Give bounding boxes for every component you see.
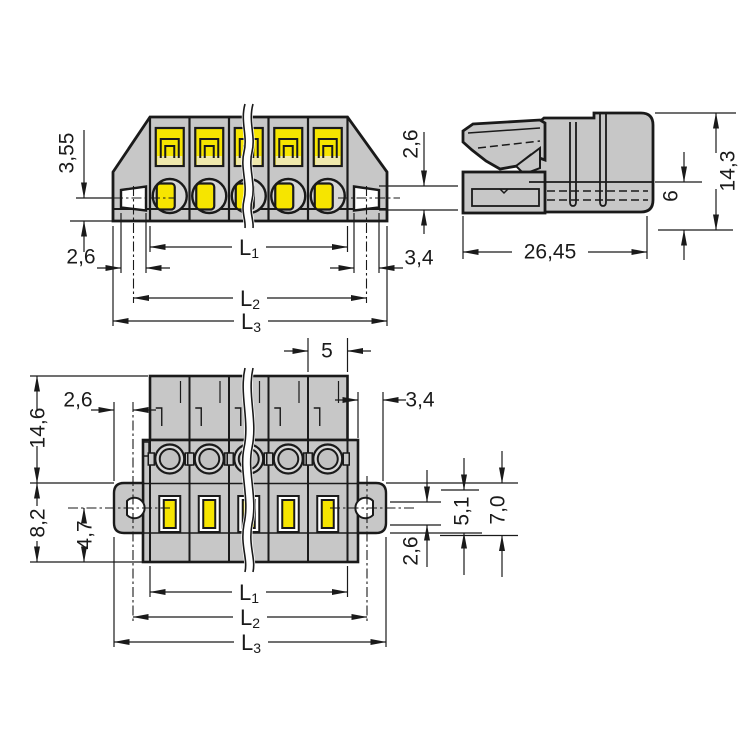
dim-label-3-55: 3,55 — [56, 133, 79, 174]
dim-label-3-4: 3,4 — [404, 247, 434, 270]
dim-label-14-6: 14,6 — [27, 408, 50, 449]
dim-label-L1-bottom: L1 — [239, 580, 259, 607]
front-break-line — [243, 104, 253, 228]
side-view: 6 14,3 26,45 — [463, 113, 740, 264]
dim-label-14-3: 14,3 — [717, 151, 740, 192]
front-housing — [113, 117, 400, 303]
dim-label-6: 6 — [660, 190, 683, 202]
dim-label-7-0: 7,0 — [487, 495, 510, 524]
side-main-body — [529, 113, 653, 212]
side-housing — [463, 113, 653, 213]
front-view: 3,55 2,6 2,6 3,4 L1 L2 L3 — [56, 104, 459, 335]
connector-dimension-drawing: 3,55 2,6 2,6 3,4 L1 L2 L3 — [0, 0, 750, 750]
dim-label-5-1: 5,1 — [451, 496, 474, 525]
dim-label-3-4-bottom: 3,4 — [405, 389, 435, 412]
dim-label-2-6-right-bottom: 2,6 — [400, 536, 423, 565]
dim-label-26-45: 26,45 — [524, 241, 577, 264]
dim-label-L1: L1 — [239, 235, 259, 262]
dim-label-8-2: 8,2 — [27, 508, 50, 537]
dim-label-5: 5 — [321, 340, 333, 363]
bottom-break-line — [243, 368, 254, 572]
dim-label-2-6-left: 2,6 — [66, 246, 95, 269]
dim-label-L3: L3 — [241, 309, 261, 336]
dim-label-4-7: 4,7 — [74, 520, 97, 549]
technical-drawing-page: 3,55 2,6 2,6 3,4 L1 L2 L3 — [0, 0, 750, 750]
dim-label-2-6-right: 2,6 — [400, 129, 423, 158]
bottom-view: 5 3,4 2,6 14,6 8,2 4,7 2,6 5,1 7,0 L1 L2… — [27, 338, 519, 656]
dim-label-L2-bottom: L2 — [240, 605, 260, 632]
dim-label-L3-bottom: L3 — [241, 630, 261, 657]
dim-label-2-6-top-left: 2,6 — [63, 389, 92, 412]
